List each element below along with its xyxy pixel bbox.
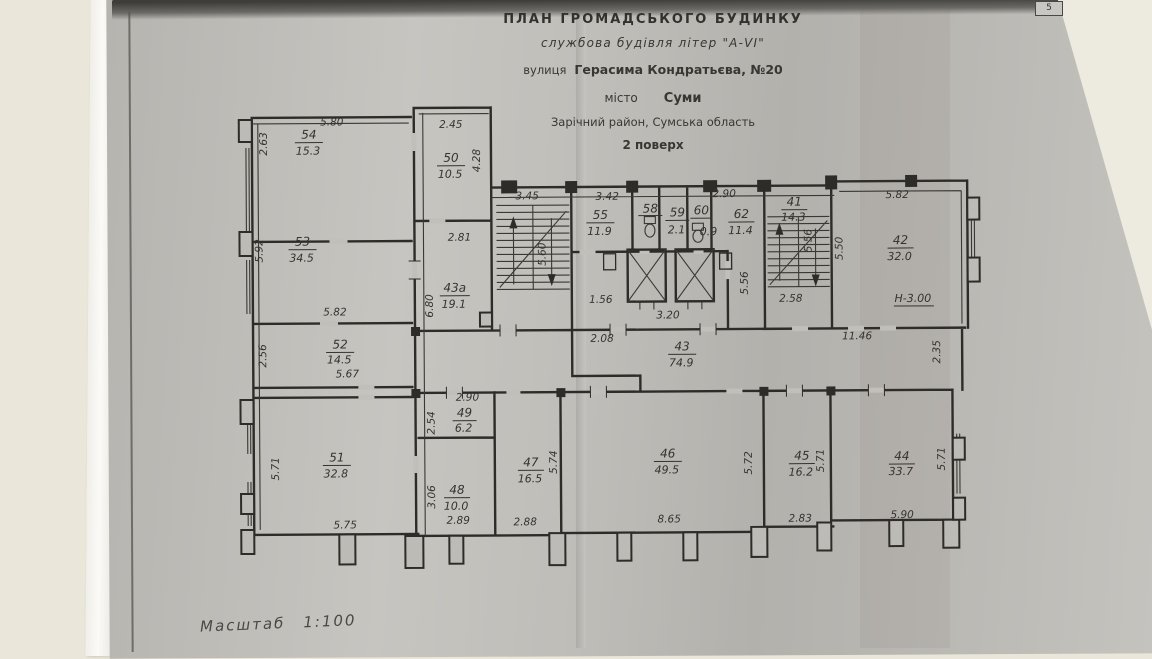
dim: 2.54 (426, 411, 438, 434)
room-number: 53 (295, 235, 310, 249)
room-number: 44 (894, 449, 909, 463)
dim: 2.08 (590, 333, 614, 345)
room-number: 62 (734, 207, 749, 221)
room-area: 10.5 (438, 168, 463, 181)
room-number: 58 (643, 201, 659, 215)
dim: 2.90 (456, 392, 480, 404)
dim: 5.71 (936, 447, 948, 470)
toilet-icon-58 (644, 217, 655, 238)
dim: 5.82 (323, 306, 347, 318)
dim: 5.56 (802, 229, 814, 253)
room-number: 52 (332, 337, 347, 351)
dim: 6.80 (424, 294, 436, 318)
room-number: 51 (329, 450, 344, 464)
room-number: 47 (523, 455, 539, 469)
room-number: 48 (449, 483, 465, 497)
dim: 5.80 (320, 116, 344, 128)
dim: 5.74 (548, 450, 560, 473)
dim: 2.63 (258, 132, 270, 155)
room-area: 49.5 (655, 463, 680, 476)
room-area: 33.7 (889, 465, 914, 478)
dim: 2.89 (446, 515, 470, 527)
room-area: 74.9 (669, 356, 694, 369)
room-area: 11.4 (728, 224, 753, 237)
staircase-right (767, 216, 829, 286)
room-area: 34.5 (289, 252, 314, 265)
room-area: 16.5 (518, 472, 543, 485)
dim: 3.20 (656, 309, 680, 321)
room-area: 14.3 (781, 211, 806, 224)
room-area: 15.3 (296, 145, 321, 158)
room-number: 60 (694, 203, 710, 217)
dim: 5.92 (253, 239, 265, 263)
dim: 2.90 (712, 188, 736, 200)
photo-of-floor-plan: { "document": { "page_number": "5", "tit… (0, 0, 1152, 648)
dim: 5.71 (270, 457, 282, 480)
room-number: 49 (457, 406, 472, 420)
dim: 11.46 (842, 330, 872, 342)
dim: 5.60 (536, 242, 548, 266)
room-number: 41 (787, 195, 802, 209)
dim: 5.72 (743, 451, 755, 475)
room-number: 45 (794, 449, 809, 463)
room-number: 54 (301, 128, 316, 142)
staircase-left (496, 205, 570, 289)
room-number: 43 (674, 339, 689, 353)
room-area: 0.9 (700, 225, 718, 238)
dim: 5.75 (333, 519, 357, 531)
elevator-shafts (604, 249, 732, 310)
dim: 1.56 (589, 294, 613, 306)
room-area: 2.1 (668, 223, 686, 236)
dim: 2.88 (513, 516, 537, 528)
room-area: 11.9 (587, 225, 612, 238)
room-area: 6.2 (455, 422, 473, 435)
wall-piers (410, 175, 918, 398)
dim: 5.50 (833, 236, 845, 260)
room-number: 50 (443, 151, 459, 165)
room-number: 43а (443, 281, 466, 295)
room-area: 32.0 (887, 250, 912, 263)
height-note: Н-3.00 (894, 292, 931, 305)
room-number: 42 (893, 233, 908, 247)
dim: 8.65 (657, 513, 681, 525)
dim: 5.67 (336, 368, 360, 380)
dim: 3.42 (595, 191, 619, 203)
dim: 4.28 (471, 149, 483, 173)
room-area: 16.2 (789, 466, 814, 479)
dim: 2.35 (931, 340, 943, 364)
room-area: 14.5 (327, 353, 352, 366)
dim: 2.56 (257, 344, 269, 368)
dim: 2.81 (448, 232, 471, 244)
dim: 2.45 (439, 119, 463, 131)
room-number: 55 (593, 208, 608, 222)
dim: 5.56 (739, 271, 751, 295)
room-number: 46 (660, 446, 676, 460)
room-area: 32.8 (324, 467, 349, 480)
dim: 5.82 (885, 189, 909, 201)
scale-label: Масштаб (200, 614, 286, 636)
dim: 2.58 (779, 293, 803, 305)
dim: 5.90 (890, 509, 914, 521)
scale-value: 1:100 (303, 611, 357, 631)
dim: 3.06 (426, 485, 438, 509)
room-number: 59 (670, 205, 685, 219)
room-area: 10.0 (444, 500, 469, 513)
plan-walls (252, 105, 970, 537)
dim: 2.83 (788, 513, 811, 525)
room-area: 19.1 (442, 298, 467, 311)
floor-plan: 54 15.3 50 10.5 53 34.5 43а 19.1 52 14.5… (0, 0, 1152, 652)
dim: 3.45 (515, 190, 539, 202)
dim: 5.71 (815, 449, 827, 472)
